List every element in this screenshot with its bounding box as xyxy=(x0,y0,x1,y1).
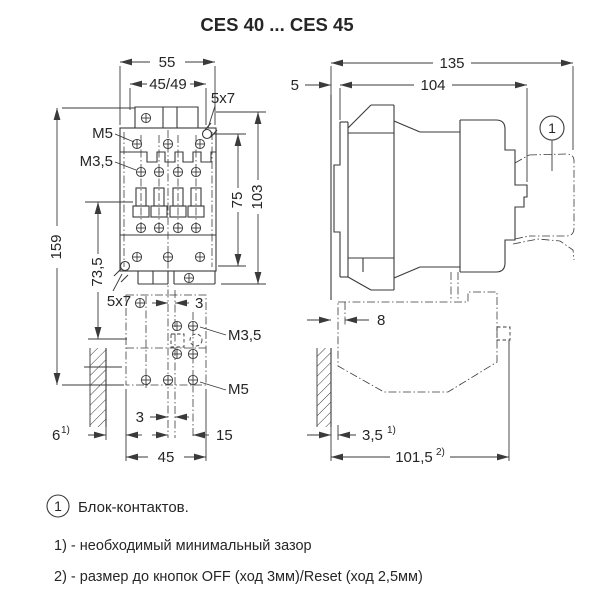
front-screw-labels-top: M5 M3,5 xyxy=(80,125,136,170)
screw-mark xyxy=(163,139,172,148)
mounting-keyhole-bottom xyxy=(121,262,130,271)
front-dim-height-159: 159 xyxy=(48,108,135,385)
screw-mark xyxy=(191,223,200,232)
dim-label-45: 45 xyxy=(158,449,175,466)
front-dim-aux-right: 15 xyxy=(152,427,233,444)
side-aux-block: 1 xyxy=(513,116,574,260)
side-dim-depth-104: 104 xyxy=(340,77,527,182)
dim-label-101-5-sup: 2) xyxy=(436,447,445,458)
page-title: CES 40 ... CES 45 xyxy=(200,14,353,35)
side-view: 135 104 5 xyxy=(291,55,574,466)
front-dim-offset-top: 3 xyxy=(152,295,203,312)
screw-mark xyxy=(132,139,141,148)
side-dim-depth-135: 135 xyxy=(331,55,573,150)
screw-mark xyxy=(163,375,172,384)
dim-label-45-49: 45/49 xyxy=(149,76,187,93)
dim-label-75: 75 xyxy=(229,192,246,209)
screw-mark xyxy=(188,375,197,384)
screw-mark xyxy=(136,167,145,176)
coil-circle-mark xyxy=(190,334,202,346)
slot-label-top: 5x7 xyxy=(211,90,235,107)
dim-label-3-5-sup: 1) xyxy=(387,425,396,436)
screw-mark xyxy=(163,252,172,261)
screw-mark xyxy=(188,321,197,330)
screw-mark xyxy=(173,167,182,176)
front-dim-aux-width: 45 xyxy=(126,389,206,466)
screw-mark xyxy=(191,167,200,176)
front-wall-section xyxy=(84,348,122,440)
footnotes: 1) - необходимый минимальный зазор 2) - … xyxy=(54,538,423,585)
dim-label-15: 15 xyxy=(216,427,233,444)
screw-mark xyxy=(173,223,182,232)
front-dim-clearance: 6 1) xyxy=(52,425,142,444)
callout-1-number: 1 xyxy=(548,120,556,136)
screw-mark xyxy=(135,298,144,307)
legend-callout-number: 1 xyxy=(54,498,62,514)
front-slot-top: 5x7 xyxy=(203,90,236,139)
side-dim-removal: 101,5 2) xyxy=(331,447,509,466)
label-m5-aux: M5 xyxy=(228,381,249,398)
side-dim-clearance-top: 8 xyxy=(307,312,385,329)
screw-mark xyxy=(154,223,163,232)
dim-label-73-5: 73,5 xyxy=(89,257,106,286)
din-rail-profile xyxy=(334,122,340,277)
screw-mark xyxy=(184,273,193,282)
side-dim-rail-offset: 5 xyxy=(291,77,331,94)
dimensional-drawing: CES 40 ... CES 45 55 45/49 5x7 xyxy=(0,0,600,600)
dim-label-135: 135 xyxy=(439,55,464,72)
dim-label-3-top: 3 xyxy=(195,295,203,312)
dim-label-55: 55 xyxy=(159,54,176,71)
screw-mark xyxy=(141,113,150,122)
dim-label-159: 159 xyxy=(48,234,65,259)
side-wall-section xyxy=(317,348,331,461)
footnote-1: 1) - необходимый минимальный зазор xyxy=(54,538,312,554)
contactor-side-body xyxy=(348,105,527,301)
front-dim-height-75: 75 xyxy=(213,134,246,266)
dim-label-8: 8 xyxy=(377,312,385,329)
slot-label-bottom: 5x7 xyxy=(107,293,131,310)
dim-label-101-5: 101,5 xyxy=(395,449,433,466)
aux-block-outline xyxy=(529,154,574,236)
label-m5: M5 xyxy=(92,125,113,142)
legend-text: Блок-контактов. xyxy=(78,499,189,516)
front-view: 55 45/49 5x7 xyxy=(48,54,266,466)
dim-label-3-bottom: 3 xyxy=(136,409,144,426)
reset-button-mark xyxy=(497,327,510,340)
label-m3-5: M3,5 xyxy=(80,153,113,170)
dim-label-5: 5 xyxy=(291,77,299,94)
dim-label-3-5: 3,5 xyxy=(362,427,383,444)
screw-mark xyxy=(154,167,163,176)
dim-label-6-sup: 1) xyxy=(61,425,70,436)
screw-mark xyxy=(172,321,181,330)
screw-mark xyxy=(195,139,204,148)
front-slot-bottom: 5x7 xyxy=(107,262,131,311)
dim-label-104: 104 xyxy=(420,77,445,94)
top-cap xyxy=(135,107,198,128)
screw-mark xyxy=(188,349,197,358)
coil-square-mark xyxy=(171,334,184,347)
side-dim-clearance-bottom: 3,5 1) xyxy=(307,425,396,444)
aux-block-swung xyxy=(513,239,574,260)
screw-mark xyxy=(136,223,145,232)
front-screw-labels-aux: M3,5 M5 xyxy=(200,327,261,398)
screw-mark xyxy=(132,252,141,261)
dim-label-6: 6 xyxy=(52,427,60,444)
label-m3-5-aux: M3,5 xyxy=(228,327,261,344)
front-dim-offset-bottom: 3 xyxy=(136,409,189,426)
footnote-2: 2) - размер до кнопок OFF (ход 3мм)/Rese… xyxy=(54,569,423,585)
screw-mark xyxy=(195,252,204,261)
mounting-keyhole-top xyxy=(203,130,212,139)
screw-mark xyxy=(141,375,150,384)
side-wall-and-rail xyxy=(331,95,348,300)
screw-mark xyxy=(172,349,181,358)
dim-label-103: 103 xyxy=(249,184,266,209)
rear-housing xyxy=(460,120,527,272)
legend: 1 Блок-контактов. xyxy=(47,495,189,517)
contactor-front-body xyxy=(120,107,216,438)
